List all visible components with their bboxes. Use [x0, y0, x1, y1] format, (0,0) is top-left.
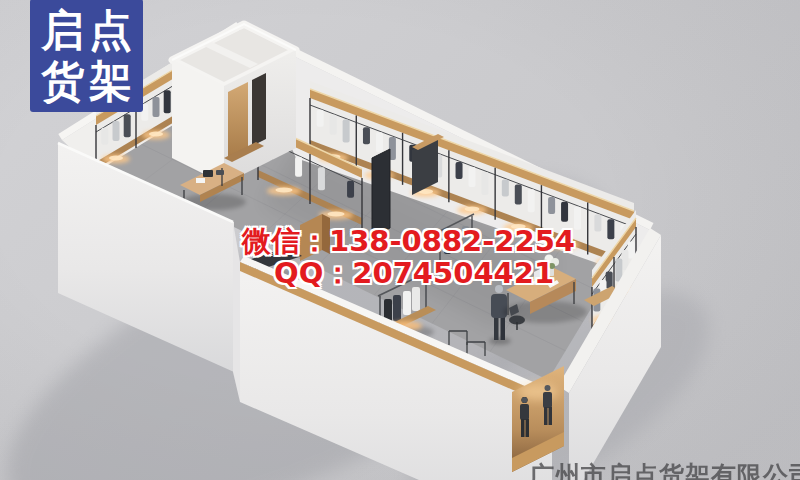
- wechat-contact-text: 微信：138-0882-2254: [242, 225, 575, 257]
- fitting-room-doorway: [252, 73, 266, 146]
- promo-image-canvas: 启点 货架 微信：138-0882-2254 QQ：2074504421 广州市…: [0, 0, 800, 480]
- handbag: [203, 170, 213, 177]
- brand-logo-line1: 启点: [36, 5, 137, 56]
- brand-logo-badge: 启点 货架: [30, 0, 143, 112]
- company-watermark: 广州市启点货架有限公司: [529, 459, 800, 480]
- fitting-room-door: [228, 82, 248, 158]
- brand-logo-line2: 货架: [36, 56, 137, 107]
- qq-contact-text: QQ：2074504421: [274, 257, 554, 289]
